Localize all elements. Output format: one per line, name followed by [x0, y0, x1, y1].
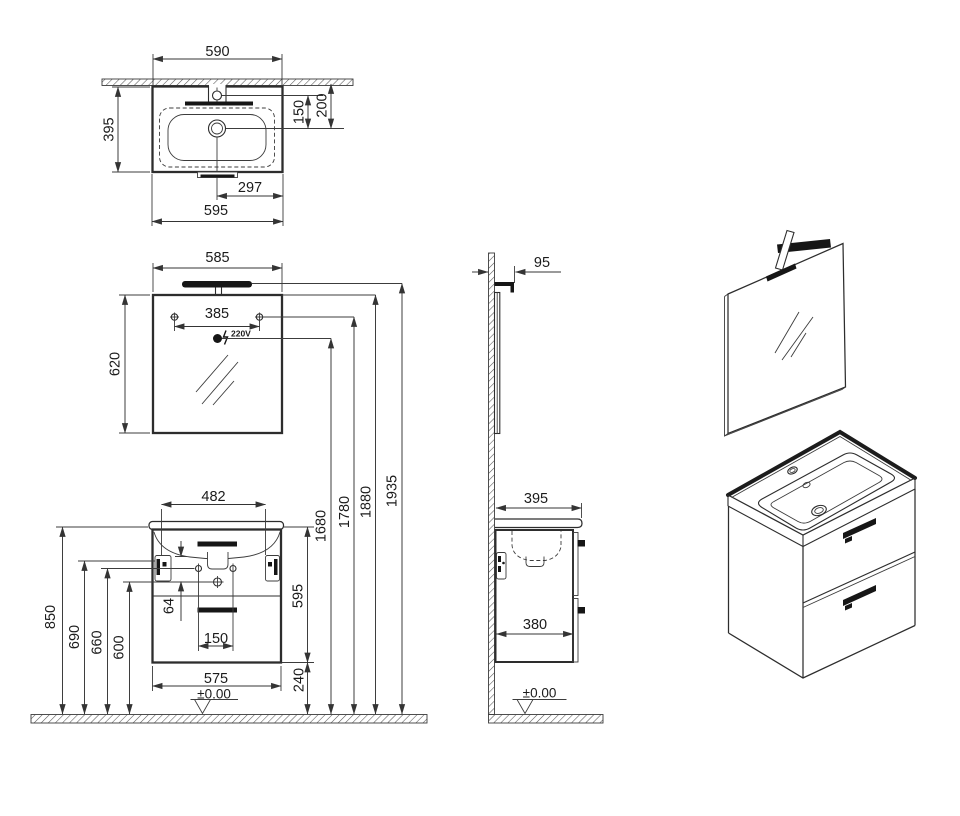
dim-drain-offset: 297: [238, 180, 262, 196]
overflow-slot: [185, 102, 253, 106]
vanity-3d-view: [728, 432, 915, 678]
dim-hole-spacing: 150: [204, 631, 228, 647]
extension-lines: [56, 509, 314, 691]
power-outlet-dot: [213, 334, 222, 343]
wall-section-hatch: [102, 79, 353, 86]
handle-profile-bottom: [578, 607, 586, 614]
cabinet-side-outline: [496, 530, 574, 662]
handle-3d-bottom: [843, 585, 876, 606]
handle-profile-top: [578, 540, 586, 547]
mirror-reflection-marks: [196, 355, 238, 405]
dim-mirror-top-height: 1880: [359, 486, 375, 518]
worktop-side: [495, 519, 582, 528]
dim-screw-height: 1780: [337, 496, 353, 528]
faucet-hole: [213, 91, 222, 100]
dim-clearance: 240: [292, 668, 308, 692]
wall-bracket-side: [497, 553, 507, 580]
basin-section-dashed: [512, 531, 561, 561]
basin-outline: [153, 87, 283, 173]
floor-hatch: [31, 715, 427, 724]
worktop-front: [149, 522, 284, 530]
datum-label-front: ±0.00: [197, 687, 231, 702]
dim-basin-depth: 395: [102, 117, 118, 141]
dim-bracket-height: 690: [67, 625, 83, 649]
dim-lamp-depth: 95: [534, 255, 550, 271]
dim-screw-spacing: 385: [205, 306, 229, 322]
installation-height-dims: 1680 1780 1880 1935: [314, 284, 403, 715]
technical-drawing-sheet: 590 395 150 200 297 595 220V 585 620 385: [0, 0, 960, 816]
washbasin-top-view: 590 395 150 200 297 595: [102, 44, 354, 226]
cabinet-front-view: 482 850 690 660 600 64 150 575 ±0.00 595…: [31, 489, 427, 723]
dim-hole-gap: 64: [162, 598, 178, 614]
dim-hole-height: 660: [90, 630, 106, 654]
datum-label-side: ±0.00: [523, 686, 557, 701]
power-voltage-label: 220V: [231, 329, 251, 339]
light-arm-profile: [495, 282, 513, 286]
light-fixture: [182, 281, 252, 288]
light-head-profile: [511, 282, 515, 293]
dim-faucet-drain: 150: [292, 100, 308, 124]
mirror-3d-view: [725, 231, 846, 437]
dim-cabinet-height: 595: [291, 584, 307, 608]
dim-wall-drain: 200: [315, 93, 331, 117]
dim-lamp-top-height: 1935: [385, 475, 401, 507]
mirror-front-view: 220V 585 620 385: [108, 250, 403, 433]
wall-hatch: [489, 253, 495, 715]
overflow-box: [208, 552, 229, 569]
cabinet-side-view: 395 380 ±0.00: [489, 491, 604, 723]
mirror-side-view: 95: [472, 253, 561, 715]
datum-triangle-side: [517, 700, 533, 714]
dim-body-depth: 380: [523, 617, 547, 633]
lightning-bolt-icon: [224, 331, 228, 345]
dim-center-hole-height: 600: [112, 635, 128, 659]
drawing-canvas: 590 395 150 200 297 595 220V 585 620 385: [0, 0, 960, 816]
drawer-handle-top: [198, 542, 238, 547]
datum-triangle: [195, 700, 211, 714]
dim-worktop-height: 850: [43, 605, 59, 629]
dim-basin-width-top: 590: [205, 44, 229, 60]
dim-mirror-width: 585: [205, 250, 229, 266]
dim-mirror-height: 620: [108, 352, 124, 376]
overflow-box-side: [526, 557, 544, 567]
dim-cabinet-width: 575: [204, 671, 228, 687]
floor-hatch-side: [489, 715, 604, 724]
handle-3d-top: [843, 518, 876, 539]
dim-total-depth: 395: [524, 491, 548, 507]
dim-bracket-spacing: 482: [201, 489, 225, 505]
drawer-handle-bottom: [198, 608, 238, 613]
dim-socket-height: 1680: [314, 510, 330, 542]
dim-basin-total-width: 595: [204, 203, 228, 219]
